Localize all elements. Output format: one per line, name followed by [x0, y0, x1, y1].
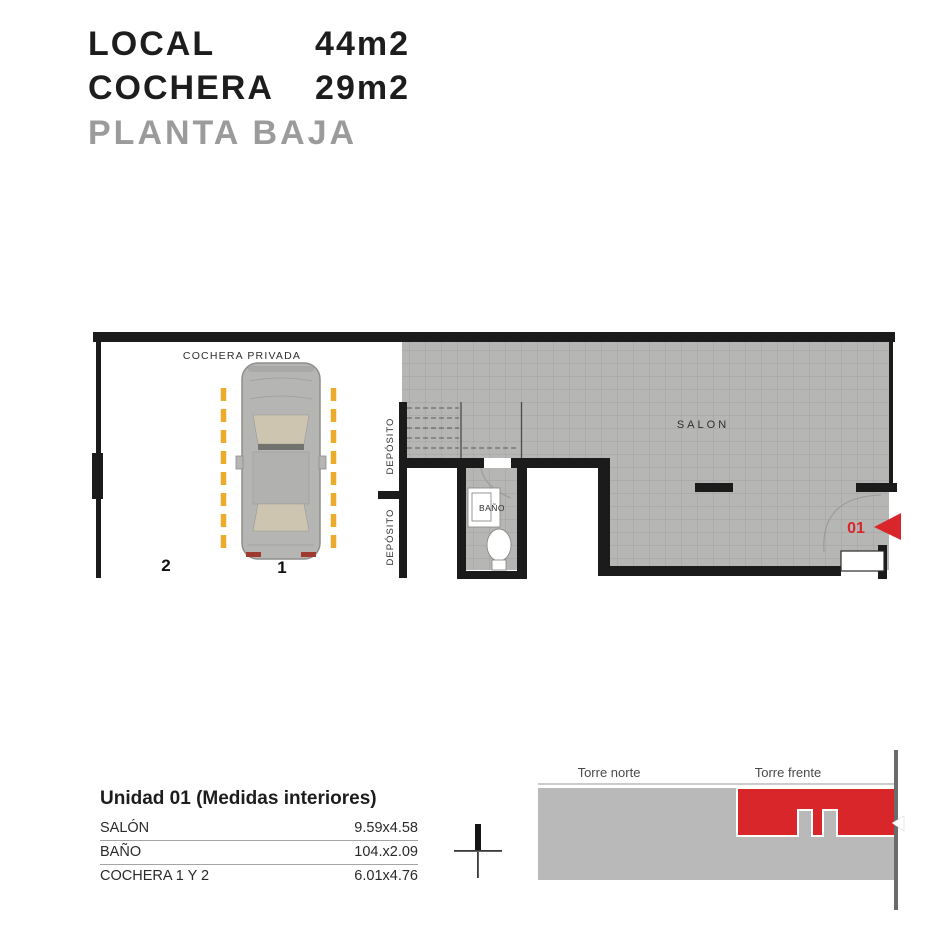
local-label: LOCAL — [88, 22, 215, 66]
row-label: COCHERA 1 Y 2 — [100, 868, 209, 884]
compass-needle — [475, 824, 481, 851]
compass-crossbar — [454, 850, 502, 852]
measures-table-title: Unidad 01 (Medidas interiores) — [100, 788, 418, 810]
unit-01-marker-label: 01 — [847, 520, 865, 537]
title-row-cochera: COCHERA 29m2 — [88, 66, 410, 110]
table-row-bano: BAÑO 104.x2.09 — [100, 841, 418, 865]
car-top-view — [236, 363, 326, 559]
salon-floor-hatch — [402, 342, 889, 570]
title-block: LOCAL 44m2 COCHERA 29m2 PLANTA BAJA — [88, 22, 410, 156]
parking-spot-2-label: 2 — [161, 556, 170, 575]
north-compass — [452, 797, 504, 885]
cochera-privada-label: COCHERA PRIVADA — [183, 350, 301, 362]
cochera-area-value: 29m2 — [315, 66, 410, 110]
row-value: 6.01x4.76 — [354, 868, 418, 884]
parking-spot-1-label: 1 — [277, 558, 286, 577]
row-label: SALÓN — [100, 820, 149, 836]
title-row-local: LOCAL 44m2 — [88, 22, 410, 66]
floor-level-label: PLANTA BAJA — [88, 110, 410, 156]
salon-label: SALON — [677, 419, 729, 431]
site-unit-highlight — [737, 788, 895, 836]
cochera-label: COCHERA — [88, 66, 274, 110]
site-key-plan: Torre norte Torre frente — [535, 746, 915, 916]
compass-tail — [477, 852, 479, 878]
row-label: BAÑO — [100, 844, 141, 860]
floor-plan-drawing: COCHERA PRIVADA SALON BAÑO DEPÓSITO DEPÓ… — [90, 325, 905, 585]
deposito-label-top: DEPÓSITO — [385, 418, 396, 475]
site-street-line — [894, 750, 898, 910]
table-row-salon: SALÓN 9.59x4.58 — [100, 817, 418, 841]
measures-table: Unidad 01 (Medidas interiores) SALÓN 9.5… — [100, 788, 418, 888]
local-area-value: 44m2 — [315, 22, 410, 66]
row-value: 104.x2.09 — [354, 844, 418, 860]
tower-norte-label: Torre norte — [578, 765, 641, 780]
tower-frente-label: Torre frente — [755, 765, 821, 780]
row-value: 9.59x4.58 — [354, 820, 418, 836]
floorplan-page: LOCAL 44m2 COCHERA 29m2 PLANTA BAJA — [0, 0, 950, 950]
table-row-cochera: COCHERA 1 Y 2 6.01x4.76 — [100, 865, 418, 888]
bano-label: BAÑO — [479, 503, 505, 513]
entrance-door-leaf — [841, 551, 884, 571]
deposito-label-bottom: DEPÓSITO — [385, 509, 396, 566]
